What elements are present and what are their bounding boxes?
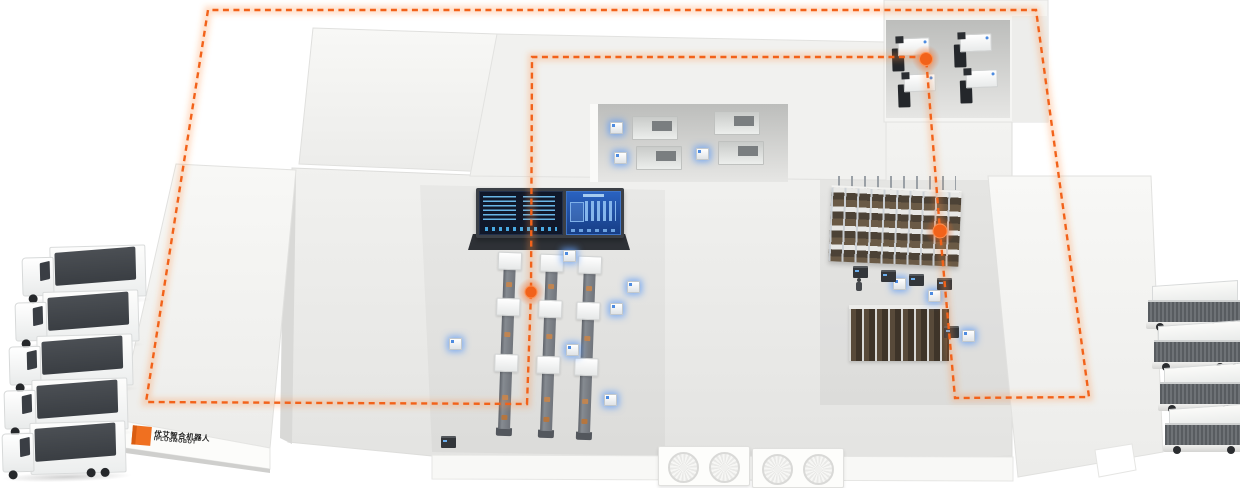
dashboard-title-bar	[583, 194, 604, 197]
conveyor-segment	[498, 371, 512, 429]
workstation	[622, 146, 682, 172]
agv-robot	[962, 330, 975, 342]
agv-robot	[928, 290, 941, 302]
machine-cell	[494, 354, 519, 373]
top-left-wall	[299, 28, 497, 172]
agv-robot	[563, 250, 576, 262]
machine-cell	[498, 252, 523, 271]
machining-station	[887, 37, 930, 72]
ticker-strip	[571, 229, 615, 232]
conveyor-segment	[581, 319, 594, 359]
machining-station	[893, 73, 936, 108]
conveyor-segment	[545, 271, 558, 301]
windshield	[33, 306, 43, 326]
agv-robot	[610, 122, 623, 134]
machine-cell	[540, 254, 565, 273]
conveyor-segment	[501, 315, 514, 355]
asrs-rack-row	[828, 185, 961, 267]
machine-cell	[496, 298, 521, 317]
data-table-column	[523, 196, 556, 222]
fan-vent-icon	[803, 454, 834, 485]
conveyor-segment	[540, 373, 554, 431]
windshield	[40, 261, 50, 281]
factory-scene: 优艾智合机器人 IPLUSMOBOT	[0, 0, 1240, 488]
machine-cell	[576, 302, 601, 321]
docked-agv	[441, 436, 456, 448]
conveyor-segment	[543, 317, 556, 357]
hvac-pad	[752, 448, 844, 488]
right-warehouse-roof	[988, 176, 1163, 477]
machining-station	[955, 69, 998, 104]
docked-agv	[937, 278, 952, 290]
machine-cell	[538, 300, 563, 319]
machining-station	[949, 33, 992, 68]
agv-robot	[449, 338, 462, 350]
machine-cell	[574, 358, 599, 377]
pallet-rack-row	[849, 305, 949, 361]
windshield	[20, 437, 30, 457]
workstation	[700, 111, 760, 137]
machine-cell	[578, 256, 603, 275]
workstation-recess-wall	[590, 104, 598, 182]
agv-robot	[604, 394, 617, 406]
top-right-wall-face	[1012, 16, 1048, 122]
fan-vent-icon	[762, 454, 793, 485]
status-dot-row	[485, 227, 557, 231]
docked-agv	[909, 274, 924, 286]
conveyor-segment	[583, 273, 596, 303]
fan-vent-icon	[668, 452, 699, 483]
machine-cell	[536, 356, 561, 375]
data-table-column	[483, 196, 516, 222]
windshield	[22, 394, 32, 414]
dashboard-screen-charts	[566, 191, 621, 235]
agv-robot	[696, 148, 709, 160]
fan-vent-icon	[709, 452, 740, 483]
truck-5	[0, 420, 129, 479]
right-warehouse-door-notch	[1095, 444, 1136, 477]
left-warehouse-roof	[118, 164, 296, 448]
dashboard-screen-tables	[479, 191, 563, 235]
agv-robot	[614, 152, 627, 164]
worker-figure	[856, 278, 862, 292]
workstation	[618, 116, 678, 142]
hvac-pad	[658, 446, 750, 486]
logo-mark-icon	[131, 425, 152, 446]
agv-robot	[610, 303, 623, 315]
conveyor-segment	[503, 269, 516, 299]
conveyor-segment	[578, 375, 592, 433]
docked-agv	[944, 326, 959, 338]
agv-robot	[627, 281, 640, 293]
kpi-box	[570, 202, 584, 222]
windshield	[27, 350, 37, 370]
workstation	[704, 141, 764, 167]
dashboard-board	[476, 188, 624, 238]
container-trailer-4	[1163, 406, 1240, 454]
docked-agv	[853, 266, 868, 278]
agv-robot	[566, 344, 579, 356]
docked-agv	[881, 270, 896, 282]
bar-chart-block	[585, 201, 616, 221]
